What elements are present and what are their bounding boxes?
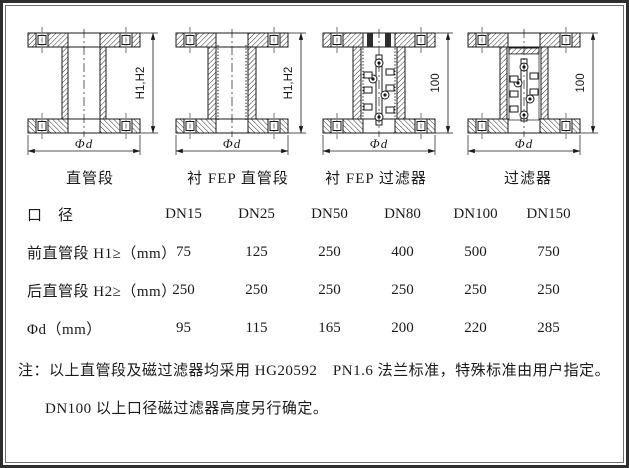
- diagram-fep-lined-filter: 100 Φd: [317, 21, 467, 163]
- drawing-sheet: H1,H2 Φd H1,H2 Φd 10: [0, 0, 629, 468]
- pipe-wall-right: [248, 47, 256, 119]
- table-cell: 75: [147, 244, 220, 261]
- body-wall-right: [397, 47, 405, 119]
- col-header-dn15: DN15: [147, 206, 220, 223]
- table-cell: 200: [366, 320, 439, 337]
- magnet-cap-left: [367, 33, 373, 47]
- row-label-h1: 前直管段 H1≥（mm）: [27, 242, 147, 263]
- table-cell: 400: [366, 244, 439, 261]
- col-header-dn80: DN80: [366, 206, 439, 223]
- table-cell: 250: [439, 282, 512, 299]
- table-cell: 285: [512, 320, 585, 337]
- body-wall-left: [353, 47, 361, 119]
- table-cell: 500: [439, 244, 512, 261]
- diagram-fep-lined-pipe: H1,H2 Φd: [170, 21, 320, 163]
- table-cell: 250: [512, 282, 585, 299]
- height-dimension-label: H1,H2: [135, 67, 147, 100]
- pipe-wall-right: [100, 47, 106, 119]
- diameter-dimension-label: Φd: [75, 136, 93, 151]
- col-header-dn100: DN100: [439, 206, 512, 223]
- note-flange-standard: 注：以上直管段及磁过滤器均采用 HG20592 PN1.6 法兰标准，特殊标准由…: [18, 359, 610, 380]
- row-label-phi-d: Φd（mm）: [27, 318, 147, 339]
- col-header-dn50: DN50: [293, 206, 366, 223]
- table-cell: 250: [293, 282, 366, 299]
- table-cell: 250: [220, 282, 293, 299]
- table-cell: 125: [220, 244, 293, 261]
- table-cell: 250: [366, 282, 439, 299]
- magnet-cap-right: [385, 33, 391, 47]
- pipe-wall-left: [62, 47, 68, 119]
- caption-fep-lined-pipe: 衬 FEP 直管段: [187, 167, 289, 188]
- height-dimension-label: 100: [575, 73, 587, 92]
- table-cell: 115: [220, 320, 293, 337]
- table-cell: 220: [439, 320, 512, 337]
- col-header-dn150: DN150: [512, 206, 585, 223]
- caption-fep-lined-filter: 衬 FEP 过滤器: [325, 167, 427, 188]
- height-dimension-label: 100: [430, 73, 442, 92]
- table-row-h1: 前直管段 H1≥（mm） 75 125 250 400 500 750: [27, 233, 585, 271]
- spec-table: 口 径 DN15 DN25 DN50 DN80 DN100 DN150 前直管段…: [27, 195, 585, 347]
- body-wall-right: [541, 47, 548, 119]
- diagram-filter: 100 Φd: [462, 21, 612, 163]
- diameter-dimension-label: Φd: [515, 136, 533, 151]
- caption-straight-pipe: 直管段: [66, 167, 114, 188]
- table-header-row: 口 径 DN15 DN25 DN50 DN80 DN100 DN150: [27, 195, 585, 233]
- table-cell: 750: [512, 244, 585, 261]
- pipe-wall-left: [208, 47, 216, 119]
- height-dimension-label: H1,H2: [283, 67, 295, 100]
- table-cell: 165: [293, 320, 366, 337]
- table-cell: 250: [147, 282, 220, 299]
- col-header-dn25: DN25: [220, 206, 293, 223]
- table-row-h2: 后直管段 H2≥（mm） 250 250 250 250 250 250: [27, 271, 585, 309]
- diagram-straight-pipe: H1,H2 Φd: [22, 21, 172, 163]
- diameter-header-label: 口 径: [27, 204, 147, 225]
- diameter-dimension-label: Φd: [223, 136, 241, 151]
- table-cell: 250: [293, 244, 366, 261]
- note-dn100-height: DN100 以上口径磁过滤器高度另行确定。: [45, 397, 328, 418]
- table-row-phi-d: Φd（mm） 95 115 165 200 220 285: [27, 309, 585, 347]
- body-wall-left: [500, 47, 507, 119]
- caption-filter: 过滤器: [504, 167, 552, 188]
- diameter-dimension-label: Φd: [370, 136, 388, 151]
- row-label-h2: 后直管段 H2≥（mm）: [27, 280, 147, 301]
- table-cell: 95: [147, 320, 220, 337]
